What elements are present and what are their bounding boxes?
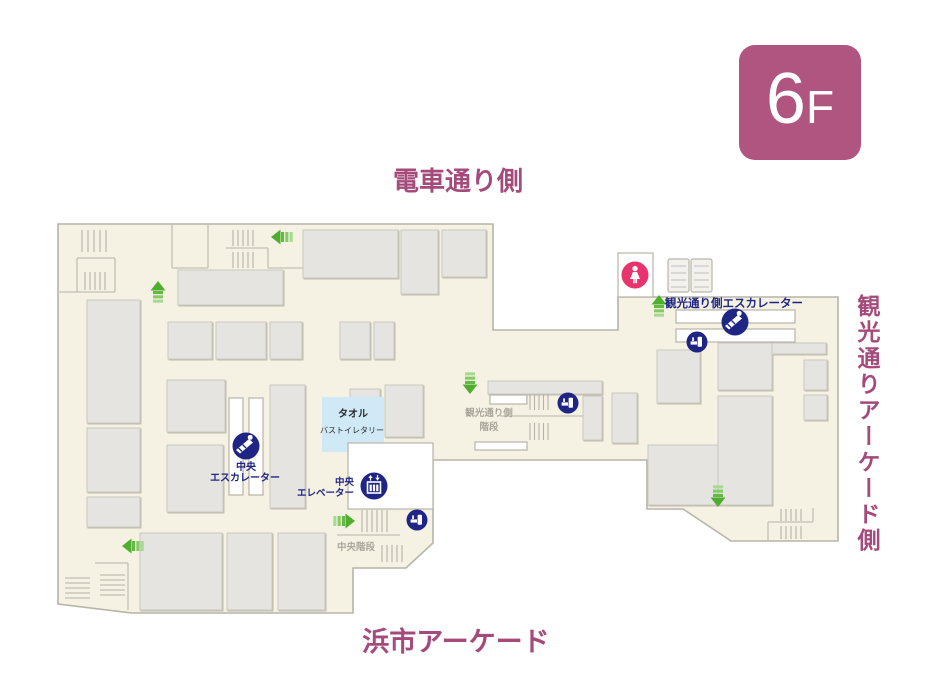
escalator-icon	[233, 433, 260, 460]
towel-label-1: タオル	[338, 408, 368, 420]
drinking-fountain-icon	[407, 510, 428, 531]
central-stairs-label: 中央階段	[337, 541, 376, 553]
central-elevator-label-2: エレベーター	[297, 487, 354, 499]
central-escalator-label-1: 中央	[236, 460, 257, 473]
kanko-stairs-label-2: 階段	[479, 421, 499, 433]
central-elevator-label-1: 中央	[335, 476, 355, 488]
kanko-stairs-label-1: 観光通り側	[465, 407, 513, 419]
floor-guide-page: 6F 電車通り側 浜市アーケード 観光通りアーケード側	[0, 0, 951, 700]
towel-label-2: バストイレタリー	[320, 426, 384, 435]
drinking-fountain-icon	[558, 393, 579, 414]
kanko-escalator-label: 観光通り側エスカレーター	[665, 296, 803, 310]
central-void	[348, 443, 433, 509]
drinking-fountain-icon	[687, 332, 708, 353]
escalator-icon	[722, 309, 749, 336]
women-toilet-icon	[622, 262, 649, 289]
central-escalator-label-2: エスカレーター	[210, 472, 280, 484]
kanko-stairs-landing	[490, 395, 527, 404]
elevator-icon	[361, 473, 388, 500]
kanko-stairs-landing-2	[475, 442, 527, 450]
double-flight-stairs-icon	[668, 259, 712, 292]
floor-map: 観光通り側エスカレーター 中央 エスカレーター 中央 エレベーター 観光通り側 …	[0, 0, 951, 700]
